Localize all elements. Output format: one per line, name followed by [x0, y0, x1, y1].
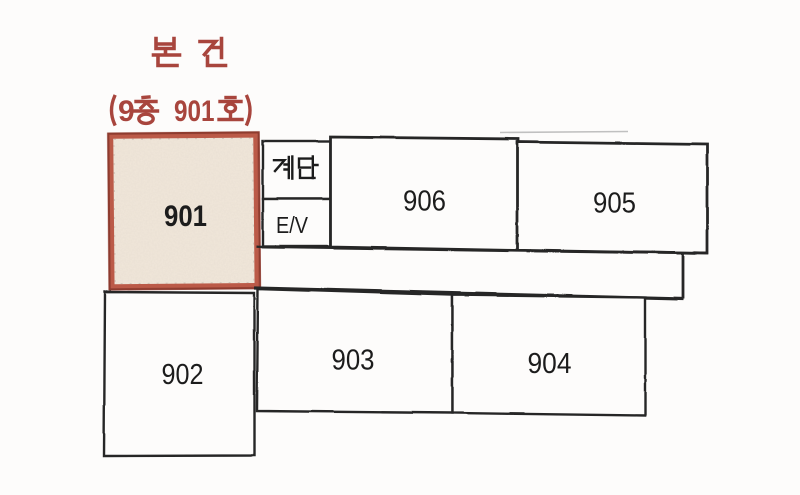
- svg-text:906: 906: [403, 186, 446, 218]
- svg-text:901: 901: [164, 200, 207, 233]
- svg-text:901: 901: [174, 95, 215, 128]
- svg-text:902: 902: [162, 359, 204, 391]
- svg-text:905: 905: [593, 188, 636, 220]
- svg-text:904: 904: [528, 348, 572, 380]
- svg-text:9: 9: [118, 95, 135, 128]
- svg-text:E/V: E/V: [276, 212, 309, 238]
- svg-text:903: 903: [332, 345, 375, 377]
